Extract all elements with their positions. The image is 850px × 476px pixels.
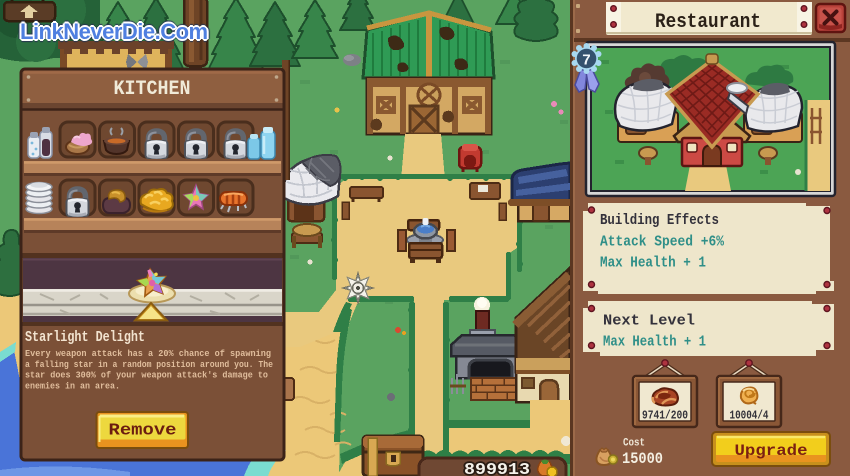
svg-text:9741/200: 9741/200 — [642, 410, 688, 423]
svg-text:Max Health + 1: Max Health + 1 — [600, 255, 706, 272]
svg-text:Restaurant: Restaurant — [655, 11, 761, 34]
svg-text:7: 7 — [582, 53, 591, 70]
svg-text:15000: 15000 — [622, 450, 663, 468]
svg-text:Upgrade: Upgrade — [735, 442, 808, 460]
svg-text:Next Level: Next Level — [603, 313, 695, 330]
svg-text:Attack Speed +6%: Attack Speed +6% — [600, 234, 725, 251]
svg-text:10004/4: 10004/4 — [730, 410, 769, 423]
svg-text:Building Effects: Building Effects — [600, 212, 719, 229]
svg-text:Max Health + 1: Max Health + 1 — [603, 334, 706, 351]
svg-text:Cost: Cost — [623, 438, 645, 450]
